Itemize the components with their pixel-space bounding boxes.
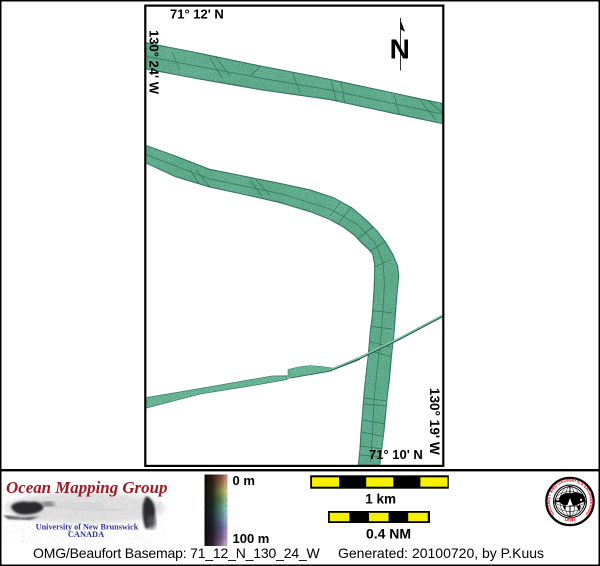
- svg-text:130° 24' W: 130° 24' W: [147, 30, 162, 95]
- svg-text:OMG/Beaufort Basemap: 71_12_N_: OMG/Beaufort Basemap: 71_12_N_130_24_W: [33, 545, 321, 561]
- svg-text:71° 12' N: 71° 12' N: [170, 6, 224, 21]
- svg-text:0 m: 0 m: [233, 473, 255, 488]
- svg-text:UNB: UNB: [564, 517, 576, 524]
- svg-text:1 km: 1 km: [365, 492, 396, 507]
- svg-text:130° 19' W: 130° 19' W: [427, 388, 442, 455]
- svg-text:N: N: [390, 34, 410, 65]
- svg-text:CANADA: CANADA: [68, 530, 104, 539]
- svg-text:Generated: 20100720, by P.Kuus: Generated: 20100720, by P.Kuus: [338, 545, 544, 561]
- svg-text:Ocean Mapping Group: Ocean Mapping Group: [6, 478, 167, 497]
- svg-text:0.4 NM: 0.4 NM: [366, 526, 411, 542]
- svg-text:100 m: 100 m: [233, 531, 270, 546]
- svg-text:71° 10' N: 71° 10' N: [369, 447, 423, 462]
